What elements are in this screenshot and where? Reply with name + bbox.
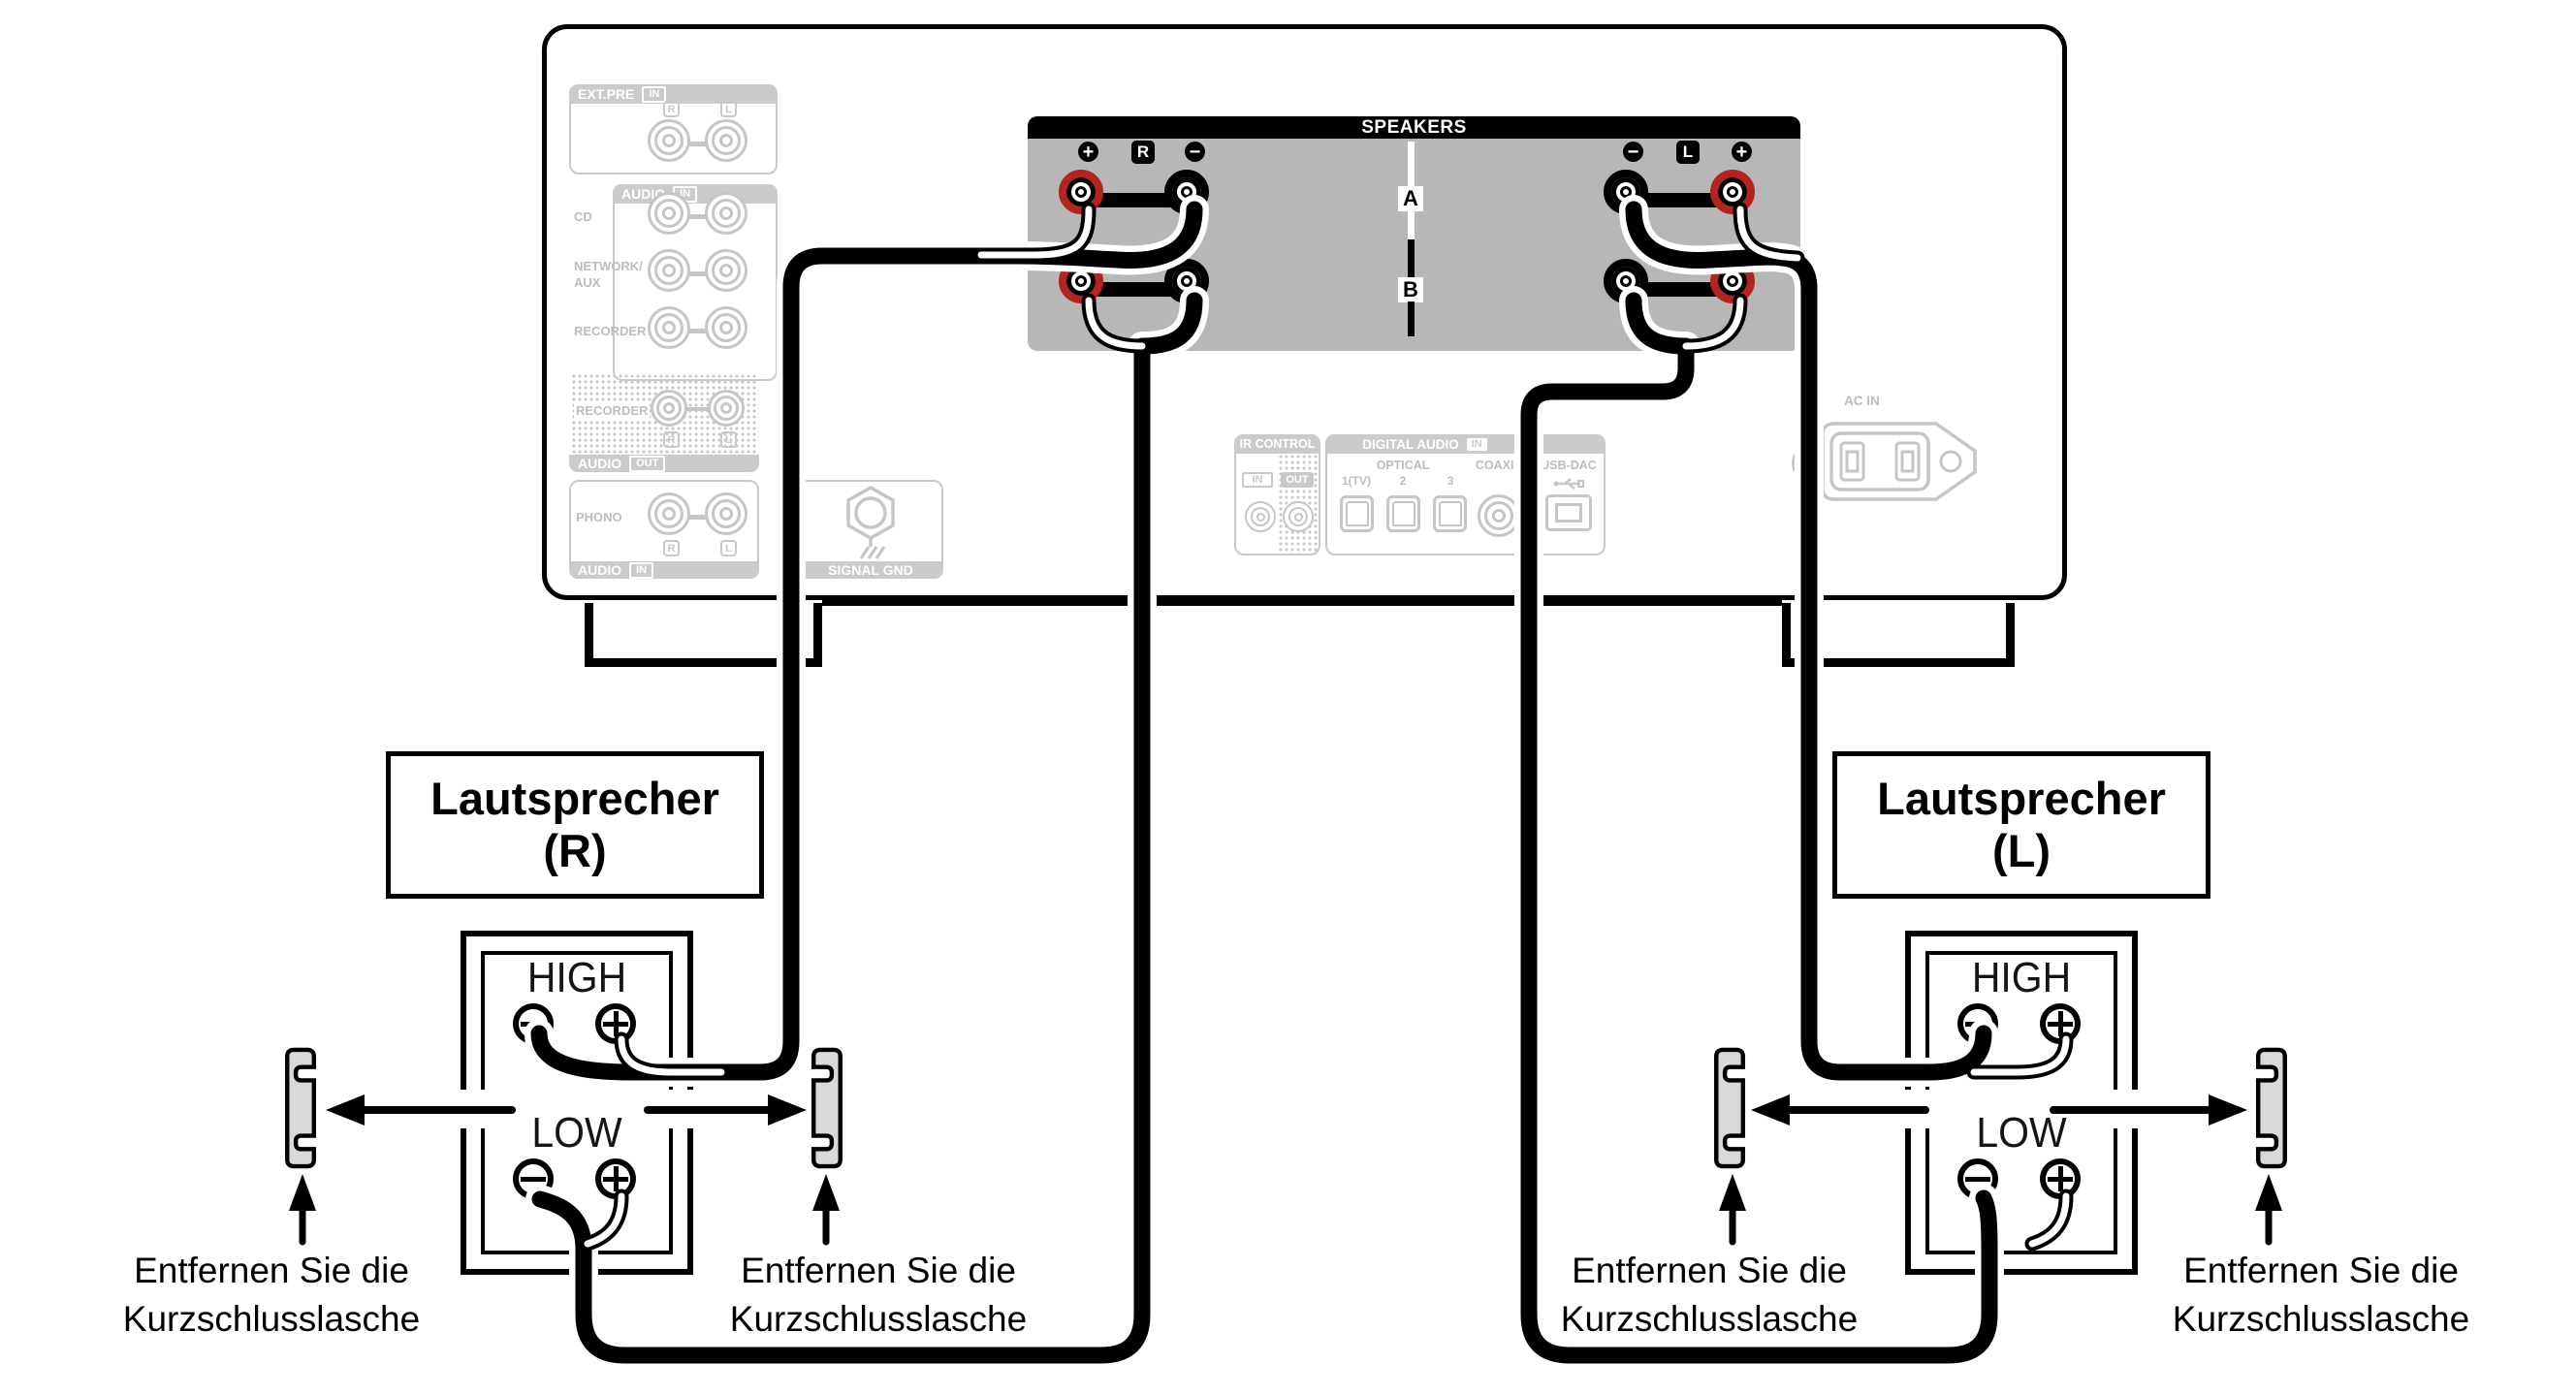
cable-l-low bbox=[1529, 301, 1989, 1355]
arrowhead-icon bbox=[326, 1094, 365, 1126]
arrowhead-icon bbox=[2255, 1174, 2282, 1211]
diagram-canvas: EXT.PRE IN R L AUDIO IN CD NETWORK/ AUX … bbox=[0, 0, 2576, 1395]
arrowhead-icon bbox=[289, 1174, 316, 1211]
arrowhead-icon bbox=[812, 1174, 840, 1211]
arrowhead-icon bbox=[1719, 1174, 1746, 1211]
cable-r-low bbox=[540, 301, 1194, 1355]
arrowhead-icon bbox=[2209, 1094, 2247, 1126]
arrowhead-icon bbox=[768, 1094, 807, 1126]
cable-overlay bbox=[0, 0, 2576, 1395]
arrowhead-icon bbox=[1751, 1094, 1790, 1126]
